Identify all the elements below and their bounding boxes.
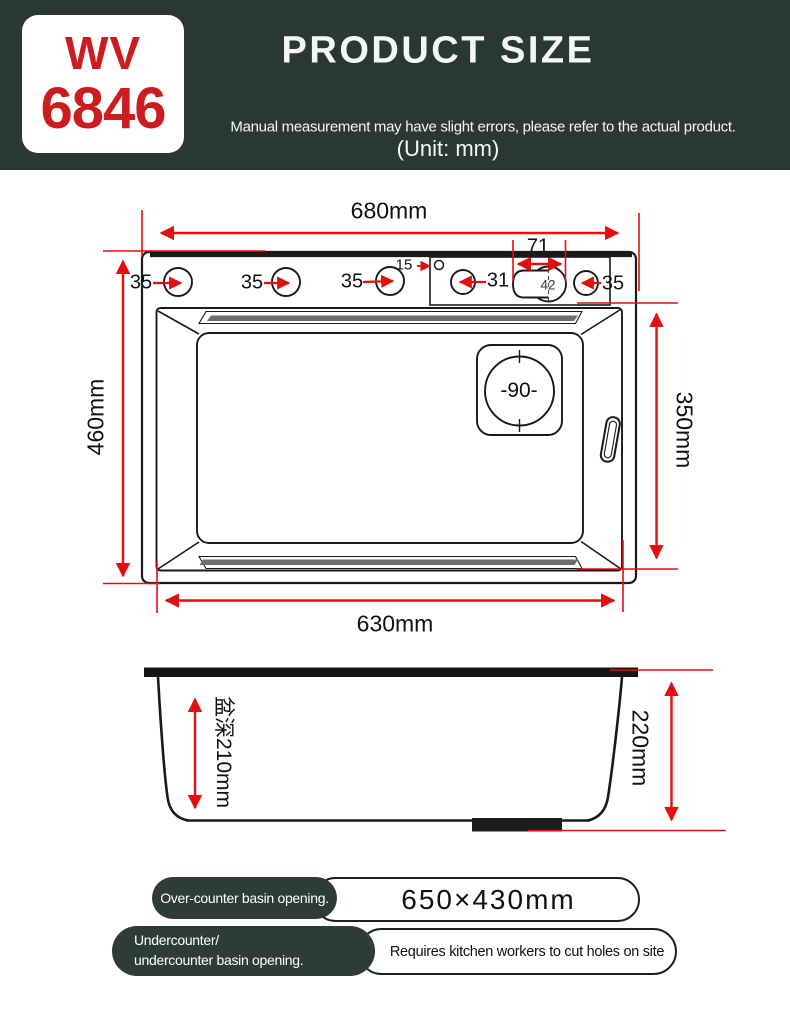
side-rim-bar <box>144 668 638 678</box>
dim-bottom-width: 630mm <box>357 611 434 638</box>
dim-hole-35-c: 35 <box>341 271 363 294</box>
side-drain-fitting <box>472 818 562 832</box>
dim-top-width: 680mm <box>351 198 428 225</box>
over-counter-value-pill: 650×430mm <box>313 877 640 922</box>
undercounter-label-pill: Undercounter/ undercounter basin opening… <box>112 926 375 976</box>
dim-left-height: 460mm <box>83 379 110 456</box>
top-view-outline <box>142 252 636 583</box>
over-counter-label: Over-counter basin opening. <box>160 890 329 906</box>
dim-drain-90: -90- <box>500 379 537 403</box>
dim-side-height: 220mm <box>627 710 654 787</box>
undercounter-label-line2: undercounter basin opening. <box>134 951 375 971</box>
dim-keyhole-width: 71 <box>527 236 549 259</box>
over-counter-label-pill: Over-counter basin opening. <box>152 877 337 919</box>
undercounter-label-line1: Undercounter/ <box>134 931 375 951</box>
undercounter-note: Requires kitchen workers to cut holes on… <box>390 944 664 960</box>
side-right-wall <box>588 677 622 821</box>
dim-keyhole-42: 42 <box>540 278 555 293</box>
undercounter-note-pill: Requires kitchen workers to cut holes on… <box>358 928 677 975</box>
dim-hole-31: 31 <box>487 270 509 293</box>
dim-hole-15: 15 <box>396 257 413 274</box>
dim-right-height: 350mm <box>671 392 698 469</box>
dim-hole-35-a: 35 <box>130 272 152 295</box>
sink-dimension-drawing <box>0 0 790 1010</box>
product-size-page: WV 6846 PRODUCT SIZE Manual measurement … <box>0 0 790 1010</box>
waterfall-groove-bottom <box>199 557 582 569</box>
small-hole-15 <box>435 261 444 270</box>
overflow-hole <box>600 416 621 463</box>
dim-hole-35-b: 35 <box>241 272 263 295</box>
side-left-wall <box>158 677 188 821</box>
waterfall-groove-top <box>199 312 582 324</box>
basin-rim <box>157 308 623 571</box>
dim-basin-depth: 盆深210mm <box>210 696 240 808</box>
over-counter-value: 650×430mm <box>401 884 575 916</box>
dim-hole-35-d: 35 <box>602 273 624 296</box>
leader-35c <box>363 281 393 282</box>
